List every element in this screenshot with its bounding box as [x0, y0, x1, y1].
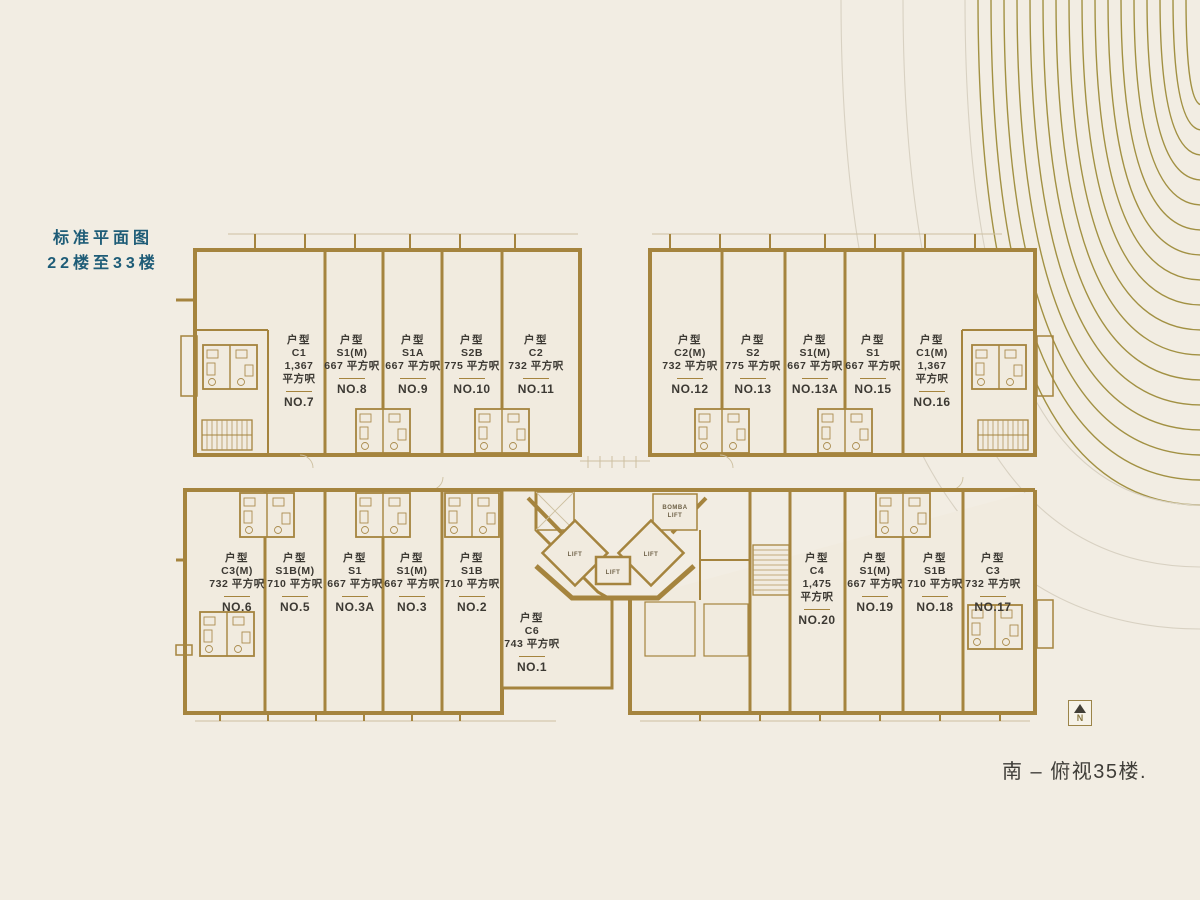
unit-divider-line — [459, 596, 485, 597]
unit-divider-line — [922, 596, 948, 597]
unit-number: NO.1 — [492, 661, 572, 674]
unit-number: NO.7 — [259, 396, 339, 409]
page: LIFT LIFT LIFT BOMBA LIFT 户型C11,367平方呎NO… — [0, 0, 1200, 900]
unit-number: NO.11 — [496, 383, 576, 396]
unit-area: 732 平方呎 — [953, 578, 1033, 591]
unit-prefix: 户型 — [492, 612, 572, 625]
unit-type: C2 — [496, 347, 576, 360]
unit-divider-line — [399, 596, 425, 597]
unit-type: C1(M) — [892, 347, 972, 360]
unit-number: NO.20 — [777, 614, 857, 627]
orientation-caption: 南 – 俯视35楼. — [1002, 755, 1147, 784]
unit-area: 732 平方呎 — [496, 360, 576, 373]
unit-divider-line — [519, 656, 545, 657]
unit-divider-line — [862, 596, 888, 597]
unit-prefix: 户型 — [496, 334, 576, 347]
unit-type: S1B — [432, 565, 512, 578]
unit-prefix: 户型 — [432, 552, 512, 565]
unit-type: C3 — [953, 565, 1033, 578]
plan-title-line1: 标准平面图 — [24, 226, 182, 251]
unit-number: NO.17 — [953, 601, 1033, 614]
unit-area: 743 平方呎 — [492, 638, 572, 651]
unit-divider-line — [286, 391, 312, 392]
north-arrow-icon — [1074, 704, 1086, 713]
unit-label-no-17: 户型C3732 平方呎NO.17 — [953, 552, 1033, 614]
unit-label-no-1: 户型C6743 平方呎NO.1 — [492, 612, 572, 674]
unit-divider-line — [282, 596, 308, 597]
unit-divider-line — [980, 596, 1006, 597]
plan-title-line2: 22楼至33楼 — [24, 251, 182, 276]
unit-divider-line — [339, 378, 365, 379]
unit-divider-line — [224, 596, 250, 597]
unit-prefix: 户型 — [892, 334, 972, 347]
unit-divider-line — [802, 378, 828, 379]
unit-divider-line — [804, 609, 830, 610]
unit-divider-line — [342, 596, 368, 597]
plan-title: 标准平面图 22楼至33楼 — [24, 226, 182, 276]
unit-area-unit: 平方呎 — [892, 373, 972, 386]
compass: N — [1068, 700, 1092, 726]
unit-divider-line — [919, 391, 945, 392]
unit-divider-line — [740, 378, 766, 379]
unit-type: C6 — [492, 625, 572, 638]
unit-divider-line — [459, 378, 485, 379]
unit-area: 710 平方呎 — [432, 578, 512, 591]
compass-north-label: N — [1077, 713, 1084, 723]
unit-label-no-2: 户型S1B710 平方呎NO.2 — [432, 552, 512, 614]
unit-label-no-16: 户型C1(M)1,367平方呎NO.16 — [892, 334, 972, 409]
unit-area: 1,367 — [892, 360, 972, 373]
unit-prefix: 户型 — [953, 552, 1033, 565]
unit-number: NO.16 — [892, 396, 972, 409]
unit-divider-line — [400, 378, 426, 379]
unit-divider-line — [860, 378, 886, 379]
unit-divider-line — [677, 378, 703, 379]
unit-divider-line — [523, 378, 549, 379]
unit-label-no-11: 户型C2732 平方呎NO.11 — [496, 334, 576, 396]
